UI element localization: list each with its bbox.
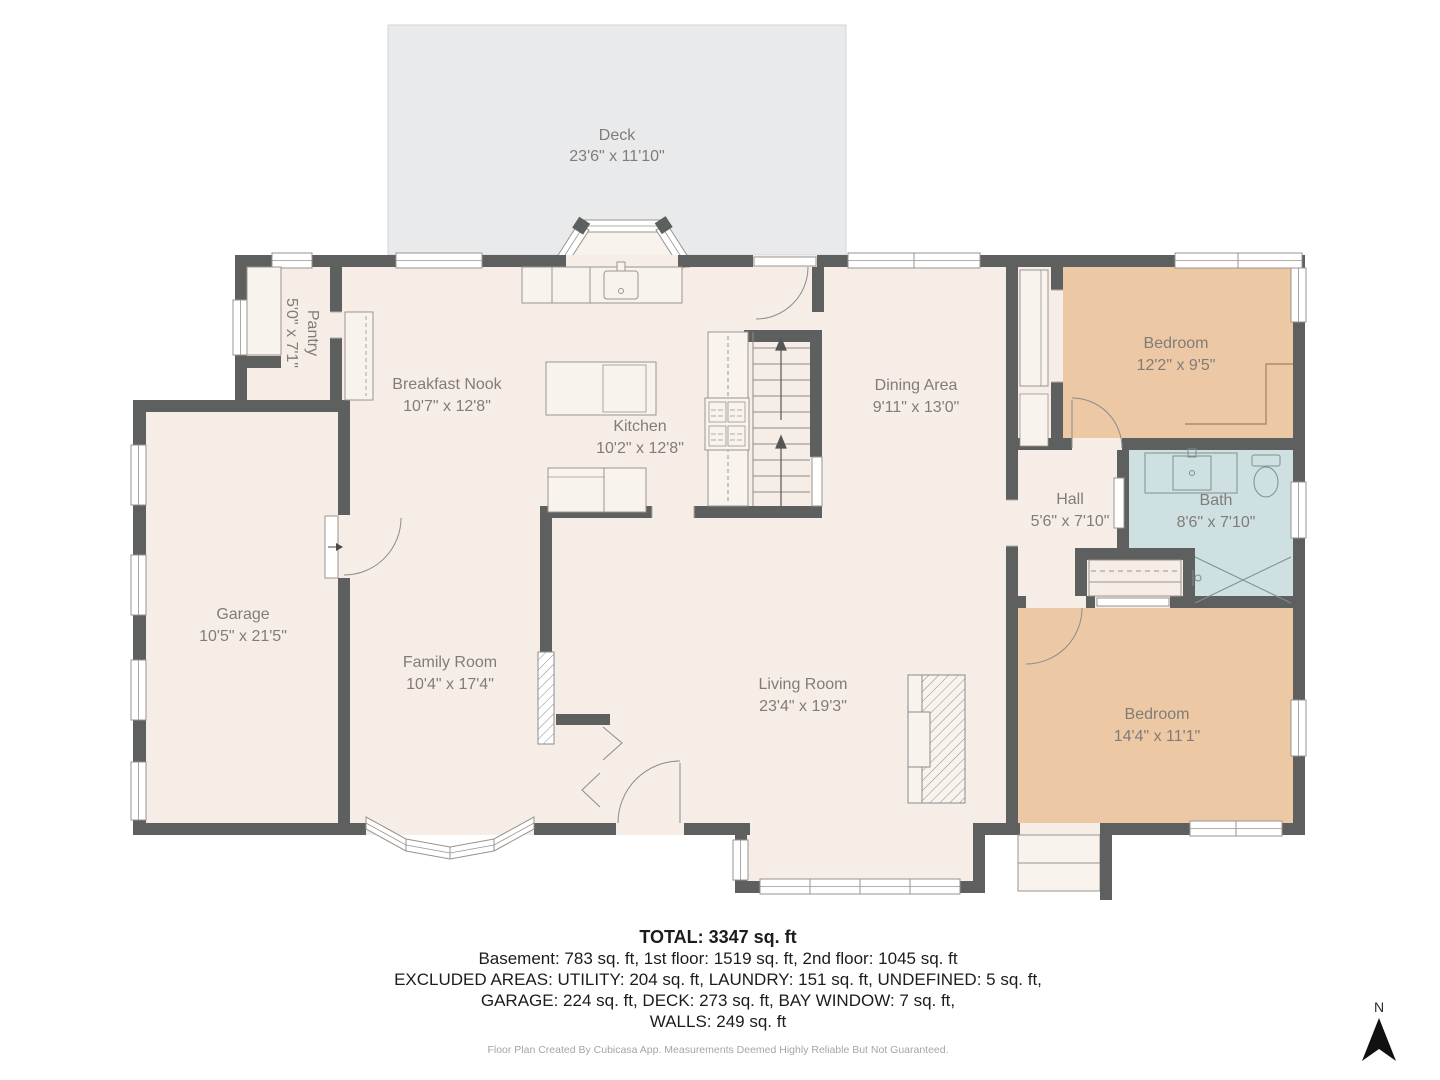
breakfast-cabinet: [345, 312, 373, 400]
room-dims-bedroom-top-right: 12'2" x 9'5": [1137, 357, 1216, 374]
kitchen-island: [546, 362, 656, 415]
summary-line-excluded-1: EXCLUDED AREAS: UTILITY: 204 sq. ft, LAU…: [394, 970, 1042, 989]
room-label-bath: Bath: [1200, 492, 1233, 509]
summary-line-walls: WALLS: 249 sq. ft: [650, 1012, 787, 1031]
cooktop: [705, 398, 749, 450]
room-dims-living-room: 23'4" x 19'3": [759, 698, 847, 715]
room-dims-hall: 5'6" x 7'10": [1031, 513, 1110, 530]
compass-label: N: [1374, 999, 1384, 1015]
room-label-family-room: Family Room: [403, 654, 497, 671]
footer-disclaimer: Floor Plan Created By Cubicasa App. Meas…: [487, 1044, 948, 1056]
entry-steps: [1018, 823, 1112, 900]
kitchen-counter-south: [548, 468, 646, 512]
fireplace: [908, 675, 965, 803]
floor-plan-page: Deck 23'6" x 11'10" Pantry 5'0" x 7'1" B…: [0, 0, 1440, 1080]
room-dims-dining-area: 9'11" x 13'0": [873, 399, 960, 416]
room-dims-bath: 8'6" x 7'10": [1177, 514, 1256, 531]
area-summary: TOTAL: 3347 sq. ft Basement: 783 sq. ft,…: [394, 927, 1042, 1056]
summary-line-floors: Basement: 783 sq. ft, 1st floor: 1519 sq…: [478, 949, 957, 968]
pantry-shelf: [247, 267, 281, 355]
room-label-bedroom-top-right: Bedroom: [1144, 335, 1209, 352]
room-label-hall: Hall: [1056, 491, 1084, 508]
room-dims-kitchen: 10'2" x 12'8": [596, 440, 684, 457]
room-dims-pantry: 5'0" x 7'1": [283, 298, 300, 368]
wardrobe-top-right: [1020, 270, 1048, 446]
room-label-garage: Garage: [216, 606, 269, 623]
compass: N: [1362, 999, 1396, 1061]
room-label-dining-area: Dining Area: [875, 377, 958, 394]
room-dims-bedroom-bottom-right: 14'4" x 11'1": [1114, 728, 1201, 745]
bedroom-top-right-floor: [1057, 267, 1293, 438]
room-label-living-room: Living Room: [759, 676, 848, 693]
room-label-deck: Deck: [599, 127, 636, 144]
room-label-kitchen: Kitchen: [613, 418, 666, 435]
summary-line-excluded-2: GARAGE: 224 sq. ft, DECK: 273 sq. ft, BA…: [481, 991, 955, 1010]
room-label-pantry: Pantry: [304, 310, 321, 356]
room-label-bedroom-bottom-right: Bedroom: [1125, 706, 1190, 723]
summary-total: TOTAL: 3347 sq. ft: [639, 927, 796, 947]
room-dims-garage: 10'5" x 21'5": [199, 628, 287, 645]
room-dims-breakfast-nook: 10'7" x 12'8": [403, 398, 491, 415]
room-label-breakfast-nook: Breakfast Nook: [392, 376, 502, 393]
floor-plan-canvas: Deck 23'6" x 11'10" Pantry 5'0" x 7'1" B…: [0, 0, 1440, 1080]
chimney-hatch: [538, 652, 554, 744]
north-arrow-icon: [1362, 1018, 1396, 1061]
room-dims-family-room: 10'4" x 17'4": [406, 676, 494, 693]
room-dims-deck: 23'6" x 11'10": [569, 148, 664, 165]
